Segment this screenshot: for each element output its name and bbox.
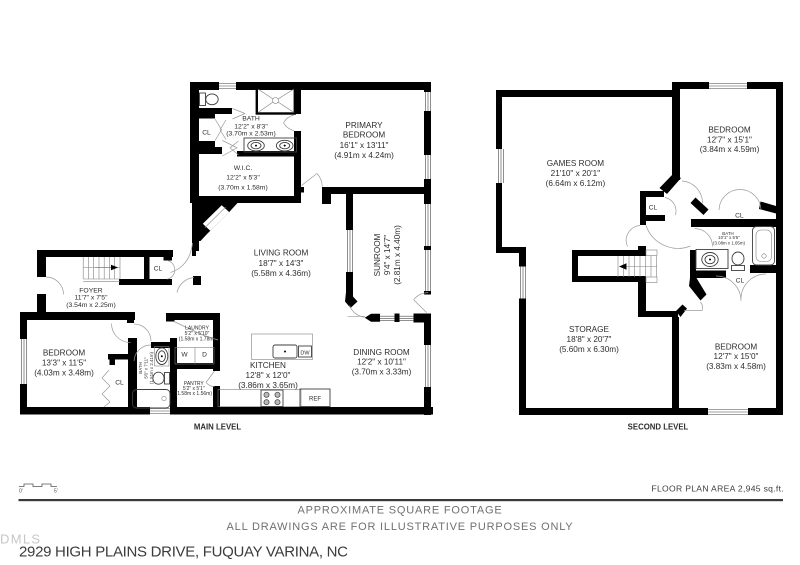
- svg-text:ALL DRAWINGS ARE FOR ILLUSTRAT: ALL DRAWINGS ARE FOR ILLUSTRATIVE PURPOS…: [227, 521, 574, 533]
- svg-text:(2.81m x 4.40m): (2.81m x 4.40m): [393, 225, 402, 285]
- svg-text:STORAGE: STORAGE: [569, 325, 609, 334]
- svg-text:(3.84m x 4.59m): (3.84m x 4.59m): [700, 145, 760, 154]
- svg-text:DINING ROOM: DINING ROOM: [353, 348, 410, 357]
- svg-text:FOYER: FOYER: [79, 287, 103, 294]
- svg-text:(3.70m x 1.58m): (3.70m x 1.58m): [218, 185, 267, 192]
- svg-text:BEDROOM: BEDROOM: [715, 343, 757, 352]
- svg-text:BEDROOM: BEDROOM: [343, 131, 385, 140]
- svg-text:0': 0': [19, 489, 23, 495]
- svg-text:(3.54m x 2.25m): (3.54m x 2.25m): [66, 302, 115, 309]
- svg-text:12'8" x 12'0": 12'8" x 12'0": [246, 371, 291, 380]
- svg-text:(3.70m x 2.53m): (3.70m x 2.53m): [226, 130, 275, 137]
- svg-text:(4.91m x 4.24m): (4.91m x 4.24m): [334, 151, 394, 160]
- svg-text:CL: CL: [736, 278, 745, 285]
- svg-text:13'3" x 11'5": 13'3" x 11'5": [42, 359, 86, 368]
- svg-text:11'7" x 7'5": 11'7" x 7'5": [75, 295, 109, 302]
- svg-text:(3.86m x 3.65m): (3.86m x 3.65m): [238, 381, 298, 390]
- svg-text:(6.64m x 6.12m): (6.64m x 6.12m): [546, 179, 606, 188]
- svg-text:(5.58m x 4.36m): (5.58m x 4.36m): [251, 269, 311, 278]
- svg-text:CL: CL: [735, 213, 744, 220]
- svg-text:12'2" x 8'3": 12'2" x 8'3": [234, 123, 268, 130]
- svg-text:DW: DW: [300, 351, 310, 357]
- svg-text:(1.58m x 1.78m): (1.58m x 1.78m): [179, 337, 216, 343]
- svg-text:(1.51m x 2.41m): (1.51m x 2.41m): [149, 351, 154, 384]
- svg-text:(3.83m x 4.58m): (3.83m x 4.58m): [706, 362, 766, 371]
- svg-text:21'10" x 20'1": 21'10" x 20'1": [551, 169, 601, 178]
- svg-text:9'4" x 14'7": 9'4" x 14'7": [383, 235, 392, 275]
- svg-text:BEDROOM: BEDROOM: [708, 126, 750, 135]
- svg-text:FLOOR PLAN AREA 2,945 sq.ft.: FLOOR PLAN AREA 2,945 sq.ft.: [651, 484, 784, 494]
- svg-text:CL: CL: [202, 130, 211, 137]
- svg-text:(3.70m x 3.33m): (3.70m x 3.33m): [352, 367, 412, 376]
- svg-text:12'7" x 15'1": 12'7" x 15'1": [707, 135, 752, 144]
- svg-text:(5.60m x 6.30m): (5.60m x 6.30m): [559, 345, 619, 354]
- svg-text:(4.03m x 3.48m): (4.03m x 3.48m): [34, 369, 94, 378]
- svg-text:MAIN LEVEL: MAIN LEVEL: [194, 423, 241, 432]
- svg-text:SECOND LEVEL: SECOND LEVEL: [628, 423, 689, 432]
- svg-text:18'8" x 20'7": 18'8" x 20'7": [567, 335, 612, 344]
- svg-text:BATH: BATH: [242, 116, 260, 123]
- svg-text:W.I.C.: W.I.C.: [234, 165, 253, 172]
- svg-text:(1.58m x 1.56m): (1.58m x 1.56m): [176, 391, 213, 397]
- svg-text:CL: CL: [649, 205, 658, 212]
- svg-text:2929 HIGH PLAINS DRIVE, FUQUAY: 2929 HIGH PLAINS DRIVE, FUQUAY VARINA, N…: [19, 544, 348, 561]
- svg-text:CL: CL: [154, 266, 163, 273]
- svg-text:LIVING ROOM: LIVING ROOM: [254, 249, 309, 258]
- svg-text:REF: REF: [309, 397, 321, 403]
- svg-text:18'7" x 14'3": 18'7" x 14'3": [259, 259, 304, 268]
- svg-text:GAMES ROOM: GAMES ROOM: [547, 159, 604, 168]
- svg-text:10'1" x 5'5": 10'1" x 5'5": [718, 235, 740, 240]
- svg-text:12'7" x 15'0": 12'7" x 15'0": [714, 352, 759, 361]
- svg-text:D: D: [202, 352, 207, 359]
- svg-text:PRIMARY: PRIMARY: [345, 121, 383, 130]
- svg-text:16'1" x 13'11": 16'1" x 13'11": [340, 141, 389, 150]
- svg-text:5'0" x 7'11": 5'0" x 7'11": [144, 357, 149, 379]
- svg-text:5': 5': [54, 489, 58, 495]
- svg-text:KITCHEN: KITCHEN: [250, 361, 286, 370]
- svg-text:12'2" x 5'3": 12'2" x 5'3": [226, 175, 260, 182]
- svg-text:APPROXIMATE SQUARE FOOTAGE: APPROXIMATE SQUARE FOOTAGE: [298, 505, 503, 517]
- svg-text:W: W: [181, 352, 188, 359]
- svg-text:SUNROOM: SUNROOM: [373, 233, 382, 276]
- svg-text:BATH: BATH: [138, 362, 143, 373]
- svg-text:CL: CL: [115, 380, 124, 387]
- svg-text:BEDROOM: BEDROOM: [43, 349, 85, 358]
- svg-text:(3.08m x 1.65m): (3.08m x 1.65m): [713, 241, 746, 246]
- svg-text:12'2" x 10'11": 12'2" x 10'11": [357, 358, 406, 367]
